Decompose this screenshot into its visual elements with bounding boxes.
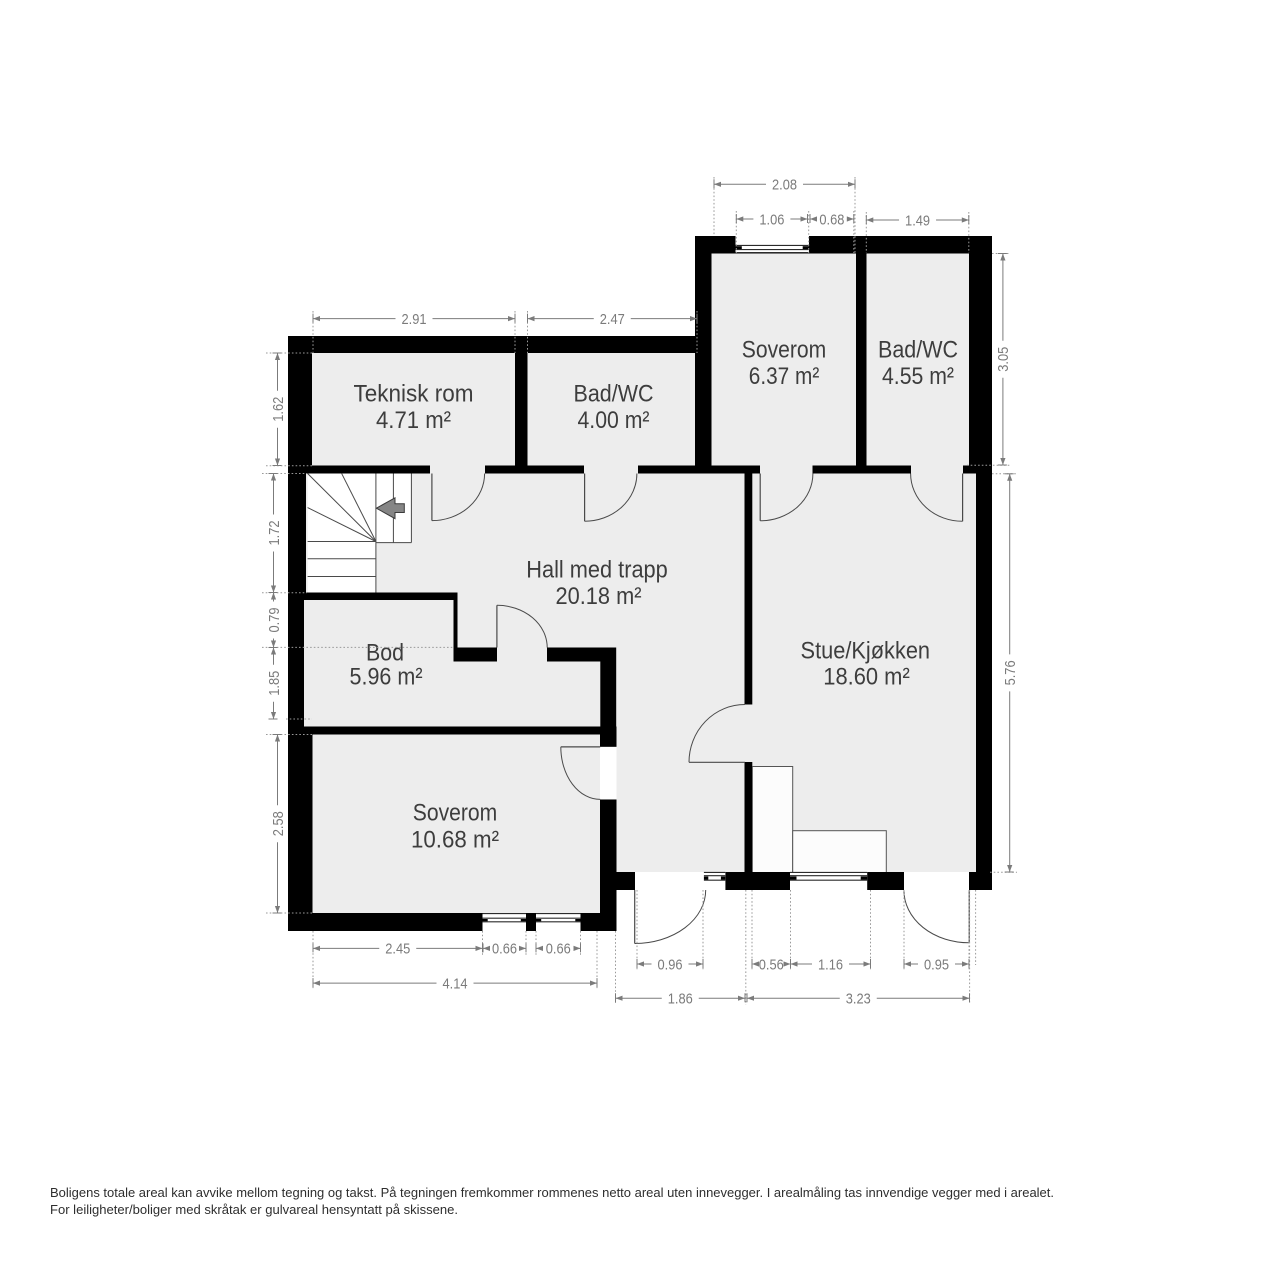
svg-text:4.00 m²: 4.00 m² [578, 407, 650, 434]
svg-text:Teknisk rom: Teknisk rom [354, 381, 474, 408]
svg-text:0.68: 0.68 [819, 211, 844, 228]
svg-text:1.49: 1.49 [905, 212, 930, 229]
svg-text:5.96 m²: 5.96 m² [350, 664, 423, 691]
svg-text:Stue/Kjøkken: Stue/Kjøkken [801, 638, 931, 665]
svg-text:Hall med trapp: Hall med trapp [526, 557, 668, 584]
svg-text:3.23: 3.23 [846, 991, 871, 1008]
svg-text:1.86: 1.86 [668, 991, 693, 1008]
svg-text:10.68 m²: 10.68 m² [411, 827, 499, 854]
svg-text:4.14: 4.14 [443, 975, 468, 992]
svg-text:Soverom: Soverom [742, 337, 827, 364]
svg-text:2.47: 2.47 [600, 311, 625, 328]
svg-text:0.79: 0.79 [266, 608, 283, 633]
svg-text:4.55 m²: 4.55 m² [882, 363, 954, 390]
svg-text:1.72: 1.72 [266, 521, 283, 546]
svg-text:2.58: 2.58 [270, 811, 287, 836]
svg-text:Boligens totale areal kan avvi: Boligens totale areal kan avvike mellom … [50, 1185, 1054, 1200]
svg-text:0.56: 0.56 [759, 956, 784, 973]
svg-text:1.62: 1.62 [270, 397, 287, 422]
svg-text:Soverom: Soverom [413, 800, 498, 827]
svg-text:0.66: 0.66 [492, 941, 517, 958]
svg-text:4.71 m²: 4.71 m² [376, 407, 451, 434]
svg-text:3.05: 3.05 [995, 347, 1012, 372]
svg-text:0.95: 0.95 [924, 956, 949, 973]
svg-text:2.91: 2.91 [402, 311, 427, 328]
svg-text:1.85: 1.85 [266, 671, 283, 696]
svg-text:1.16: 1.16 [818, 956, 843, 973]
svg-text:6.37 m²: 6.37 m² [749, 363, 820, 390]
svg-text:2.45: 2.45 [385, 941, 410, 958]
svg-text:Bad/WC: Bad/WC [878, 337, 958, 364]
svg-text:20.18 m²: 20.18 m² [556, 583, 642, 610]
svg-text:0.96: 0.96 [658, 956, 683, 973]
svg-text:1.06: 1.06 [759, 211, 784, 228]
svg-text:0.66: 0.66 [546, 941, 571, 958]
svg-text:5.76: 5.76 [1002, 660, 1019, 685]
svg-text:2.08: 2.08 [772, 177, 797, 194]
svg-text:Bad/WC: Bad/WC [574, 381, 654, 408]
svg-text:Bod: Bod [366, 640, 404, 667]
svg-text:For leiligheter/boliger med sk: For leiligheter/boliger med skråtak er g… [50, 1202, 458, 1217]
svg-text:18.60 m²: 18.60 m² [823, 664, 910, 691]
